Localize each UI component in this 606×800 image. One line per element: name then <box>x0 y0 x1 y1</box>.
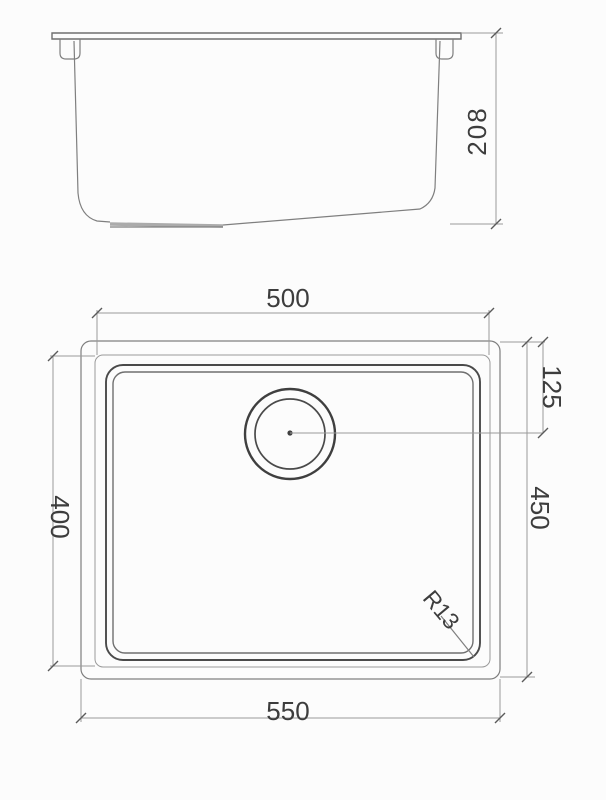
drawing-linework <box>0 0 606 800</box>
plan-bowl-inner-line <box>113 372 473 653</box>
side-bottom-and-right-wall <box>223 41 440 225</box>
plan-outer-edge <box>81 341 500 679</box>
dim-label-left-depth: 400 <box>47 495 73 538</box>
dim-label-bottom-width: 550 <box>266 698 309 724</box>
plan-view <box>48 308 548 723</box>
plan-rim-inner-edge <box>95 355 490 667</box>
dim-label-right-depth: 450 <box>527 486 553 529</box>
dim-500-ext-lines <box>97 310 489 355</box>
dim-label-drain-offset: 125 <box>539 365 565 408</box>
side-right-clip <box>436 39 453 59</box>
side-view <box>52 28 503 229</box>
side-drain-strip <box>110 224 223 226</box>
dim-label-top-width: 500 <box>266 285 309 311</box>
plan-bowl-outer-line <box>106 365 480 660</box>
technical-drawing-page: 500 550 400 450 125 208 R13 <box>0 0 606 800</box>
side-rim-outline <box>52 33 461 39</box>
dim-label-side-height: 208 <box>464 106 490 155</box>
side-left-clip <box>60 39 80 59</box>
side-left-wall <box>74 41 110 222</box>
